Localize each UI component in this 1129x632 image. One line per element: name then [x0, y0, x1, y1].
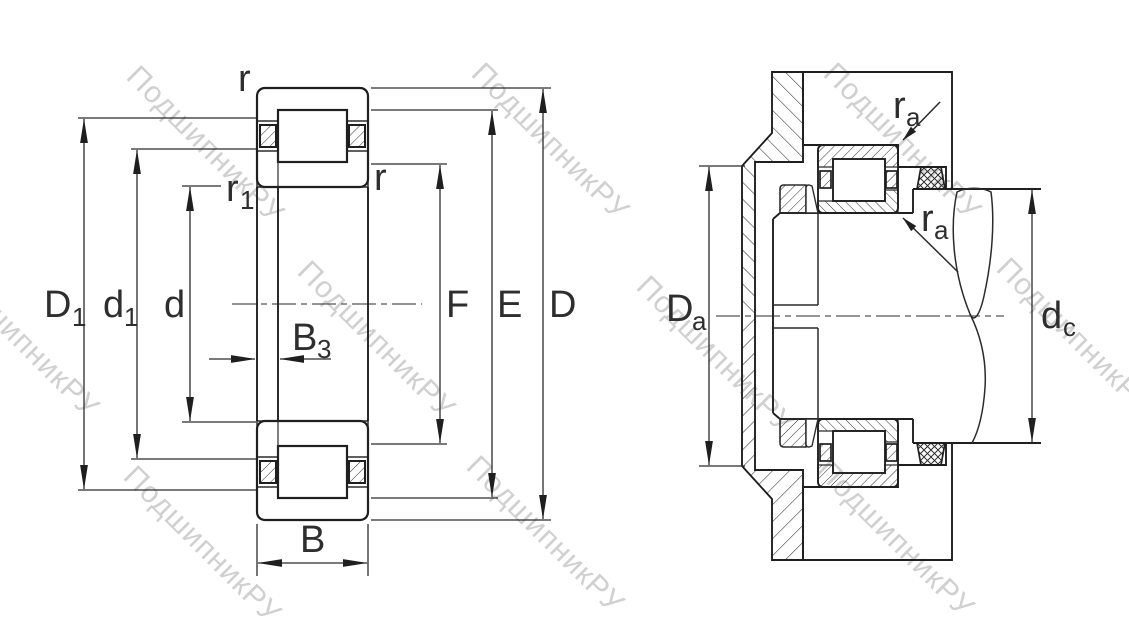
watermark-text: ПодшипникРУ: [117, 460, 287, 630]
left-diagram: D 1 d 1 d F E: [44, 58, 576, 576]
abutment-spacer: [780, 419, 806, 447]
label-B: B: [300, 519, 325, 561]
cage-right: [886, 444, 897, 461]
cage-left: [820, 171, 831, 188]
cage-lower-left: [260, 461, 276, 483]
watermark-layer: ПодшипникРУ ПодшипникРУ ПодшипникРУ Подш…: [0, 57, 1129, 630]
label-ra-lower-sub: a: [934, 215, 949, 245]
label-ra-upper: r: [893, 85, 906, 127]
shaft-break-line: [970, 314, 985, 443]
roller-lower: [278, 446, 347, 498]
label-r-outer: r: [238, 58, 251, 100]
watermark-text: ПодшипникРУ: [465, 57, 635, 227]
outer-ring: [818, 145, 898, 167]
label-E: E: [497, 284, 522, 326]
roller-upper: [278, 110, 347, 162]
label-Da-sub: a: [692, 306, 707, 336]
cage-lower-right: [349, 461, 365, 483]
label-Da: D: [666, 288, 693, 330]
label-r1-sub: 1: [240, 185, 254, 215]
bearing-upper-section: [257, 88, 368, 187]
shaft-chamfer-upper: [773, 213, 780, 219]
bearing-lower-section: [257, 421, 368, 520]
label-B3-sub: 3: [317, 334, 331, 364]
drawing-canvas: ПодшипникРУ ПодшипникРУ ПодшипникРУ Подш…: [0, 0, 1129, 632]
label-d1: d: [103, 284, 124, 326]
cage-left: [820, 444, 831, 461]
cage-upper-right: [349, 125, 365, 147]
inner-ring-lower: [257, 421, 368, 457]
label-d1-sub: 1: [124, 302, 138, 332]
label-D: D: [549, 284, 576, 326]
label-D1-sub: 1: [72, 302, 86, 332]
label-F: F: [446, 284, 469, 326]
dim-B3: B 3: [209, 317, 331, 364]
loose-rib-wedge: [806, 419, 818, 447]
label-ra-upper-sub: a: [906, 102, 921, 132]
outer-ring-upper: [257, 88, 368, 121]
dim-B: B: [257, 519, 368, 576]
loose-rib-wedge: [806, 185, 818, 213]
label-ra-lower: r: [921, 198, 934, 240]
roller: [833, 159, 885, 201]
cage-upper-left: [260, 125, 276, 147]
locating-snap-ring: [917, 167, 945, 189]
abutment-spacer: [780, 185, 806, 213]
cage-right: [886, 171, 897, 188]
watermark-text: ПодшипникРУ: [460, 450, 630, 620]
label-r-inner: r: [374, 157, 387, 199]
label-dc: d: [1041, 295, 1062, 337]
label-D1: D: [44, 284, 71, 326]
label-B3: B: [292, 317, 317, 359]
label-r1: r: [226, 168, 239, 210]
label-d: d: [164, 284, 185, 326]
outer-ring: [818, 465, 898, 487]
technical-drawing-page: ПодшипникРУ ПодшипникРУ ПодшипникРУ Подш…: [0, 0, 1129, 632]
inner-ring-upper: [257, 151, 368, 187]
label-dc-sub: c: [1063, 312, 1076, 342]
watermark-text: ПодшипникРУ: [0, 254, 105, 424]
outer-ring-lower: [257, 487, 368, 520]
